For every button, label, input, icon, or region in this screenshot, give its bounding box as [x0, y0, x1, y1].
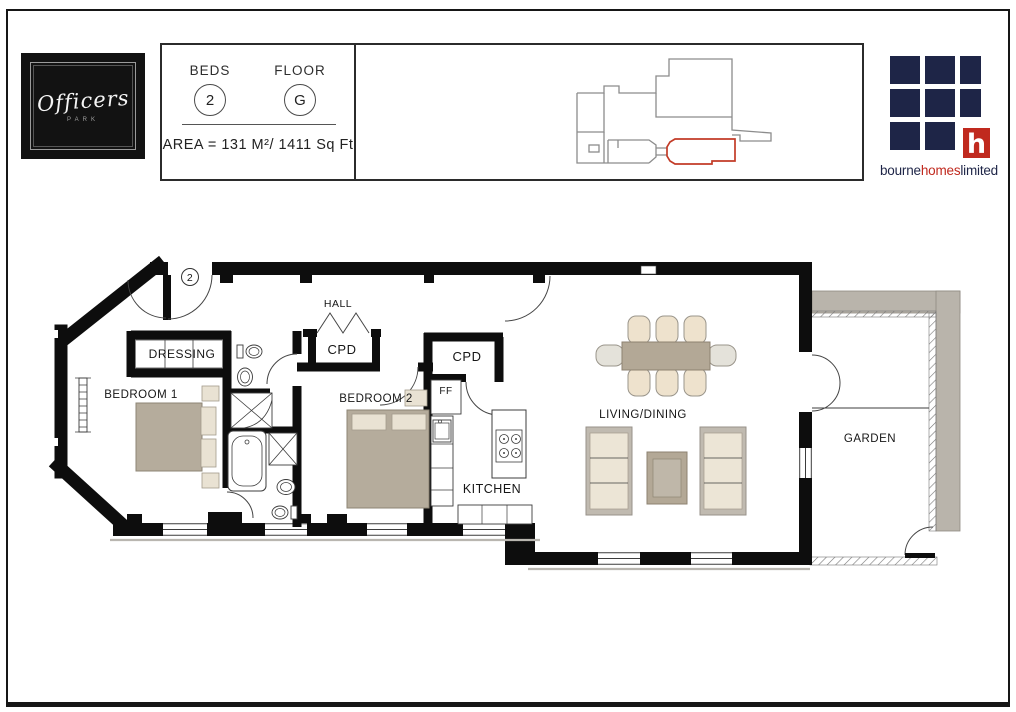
room-label-cpd1: CPD	[328, 342, 357, 357]
dining-set	[596, 316, 736, 396]
pillow	[201, 407, 216, 435]
kitchen-units	[431, 380, 532, 524]
window	[463, 523, 505, 536]
radiator-icon	[75, 378, 91, 432]
entrance-number: 2	[187, 272, 193, 284]
wc-door-arc	[267, 354, 297, 384]
bedside-table	[202, 386, 219, 401]
room-label-dressing: DRESSING	[149, 347, 216, 361]
room-label-bedroom1: BEDROOM 1	[104, 389, 178, 401]
garden-door-arc	[812, 383, 840, 411]
kitchen-counter	[458, 505, 532, 524]
garden-gate-leaf	[905, 553, 935, 558]
dining-chair	[656, 316, 678, 344]
dining-chair	[628, 316, 650, 344]
window	[691, 552, 732, 565]
garden-door-arc	[812, 355, 840, 383]
floor-plan: 2 HALL CPD CPD DRESSING BEDROOM 1 BEDROO…	[0, 0, 1016, 712]
room-label-living-dining: LIVING/DINING	[599, 409, 687, 421]
dining-chair	[596, 345, 624, 366]
room-label-kitchen: KITCHEN	[463, 482, 521, 496]
toilet-cistern	[291, 506, 297, 519]
window	[163, 523, 207, 536]
window	[799, 448, 812, 478]
living-furniture	[586, 427, 746, 515]
bedroom2-furniture	[347, 390, 429, 508]
pillow	[201, 439, 216, 467]
dining-chair	[708, 345, 736, 366]
dining-chair	[628, 368, 650, 396]
window	[367, 523, 407, 536]
room-label-hall: HALL	[324, 298, 352, 310]
room-label-cpd2: CPD	[453, 349, 482, 364]
window	[598, 552, 640, 565]
bedroom1-furniture	[136, 386, 219, 488]
cpd1-bifold-doors	[317, 313, 369, 333]
toilet-cistern	[237, 345, 243, 358]
garden-walls	[810, 291, 960, 565]
pillow	[392, 414, 426, 430]
room-label-ff: FF	[439, 386, 452, 397]
dining-chair	[656, 368, 678, 396]
bed	[136, 403, 202, 471]
dining-chair	[684, 368, 706, 396]
pillow	[352, 414, 386, 430]
floorplan-page: Officers PARK BEDS 2 FLOOR G AREA = 131 …	[0, 0, 1016, 712]
dining-chair	[684, 316, 706, 344]
room-label-garden: GARDEN	[844, 433, 896, 445]
room-label-bedroom2: BEDROOM 2	[339, 393, 413, 405]
dining-table	[622, 342, 710, 370]
bedside-table	[202, 473, 219, 488]
